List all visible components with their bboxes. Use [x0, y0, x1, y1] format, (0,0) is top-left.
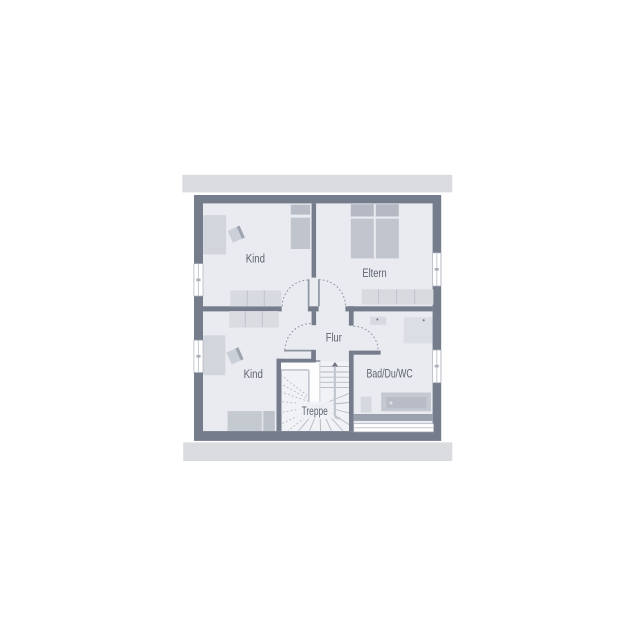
svg-text:Treppe: Treppe	[302, 404, 328, 418]
svg-text:Kind: Kind	[244, 367, 263, 381]
svg-text:Flur: Flur	[326, 331, 342, 345]
svg-text:Bad/Du/WC: Bad/Du/WC	[367, 367, 413, 381]
svg-text:Eltern: Eltern	[362, 266, 386, 280]
svg-text:Kind: Kind	[246, 252, 265, 266]
